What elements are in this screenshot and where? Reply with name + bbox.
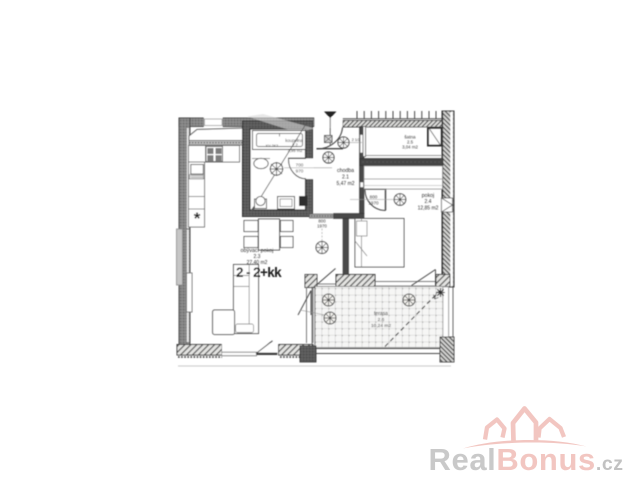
- svg-text:RealBonus.cz: RealBonus.cz: [429, 442, 624, 477]
